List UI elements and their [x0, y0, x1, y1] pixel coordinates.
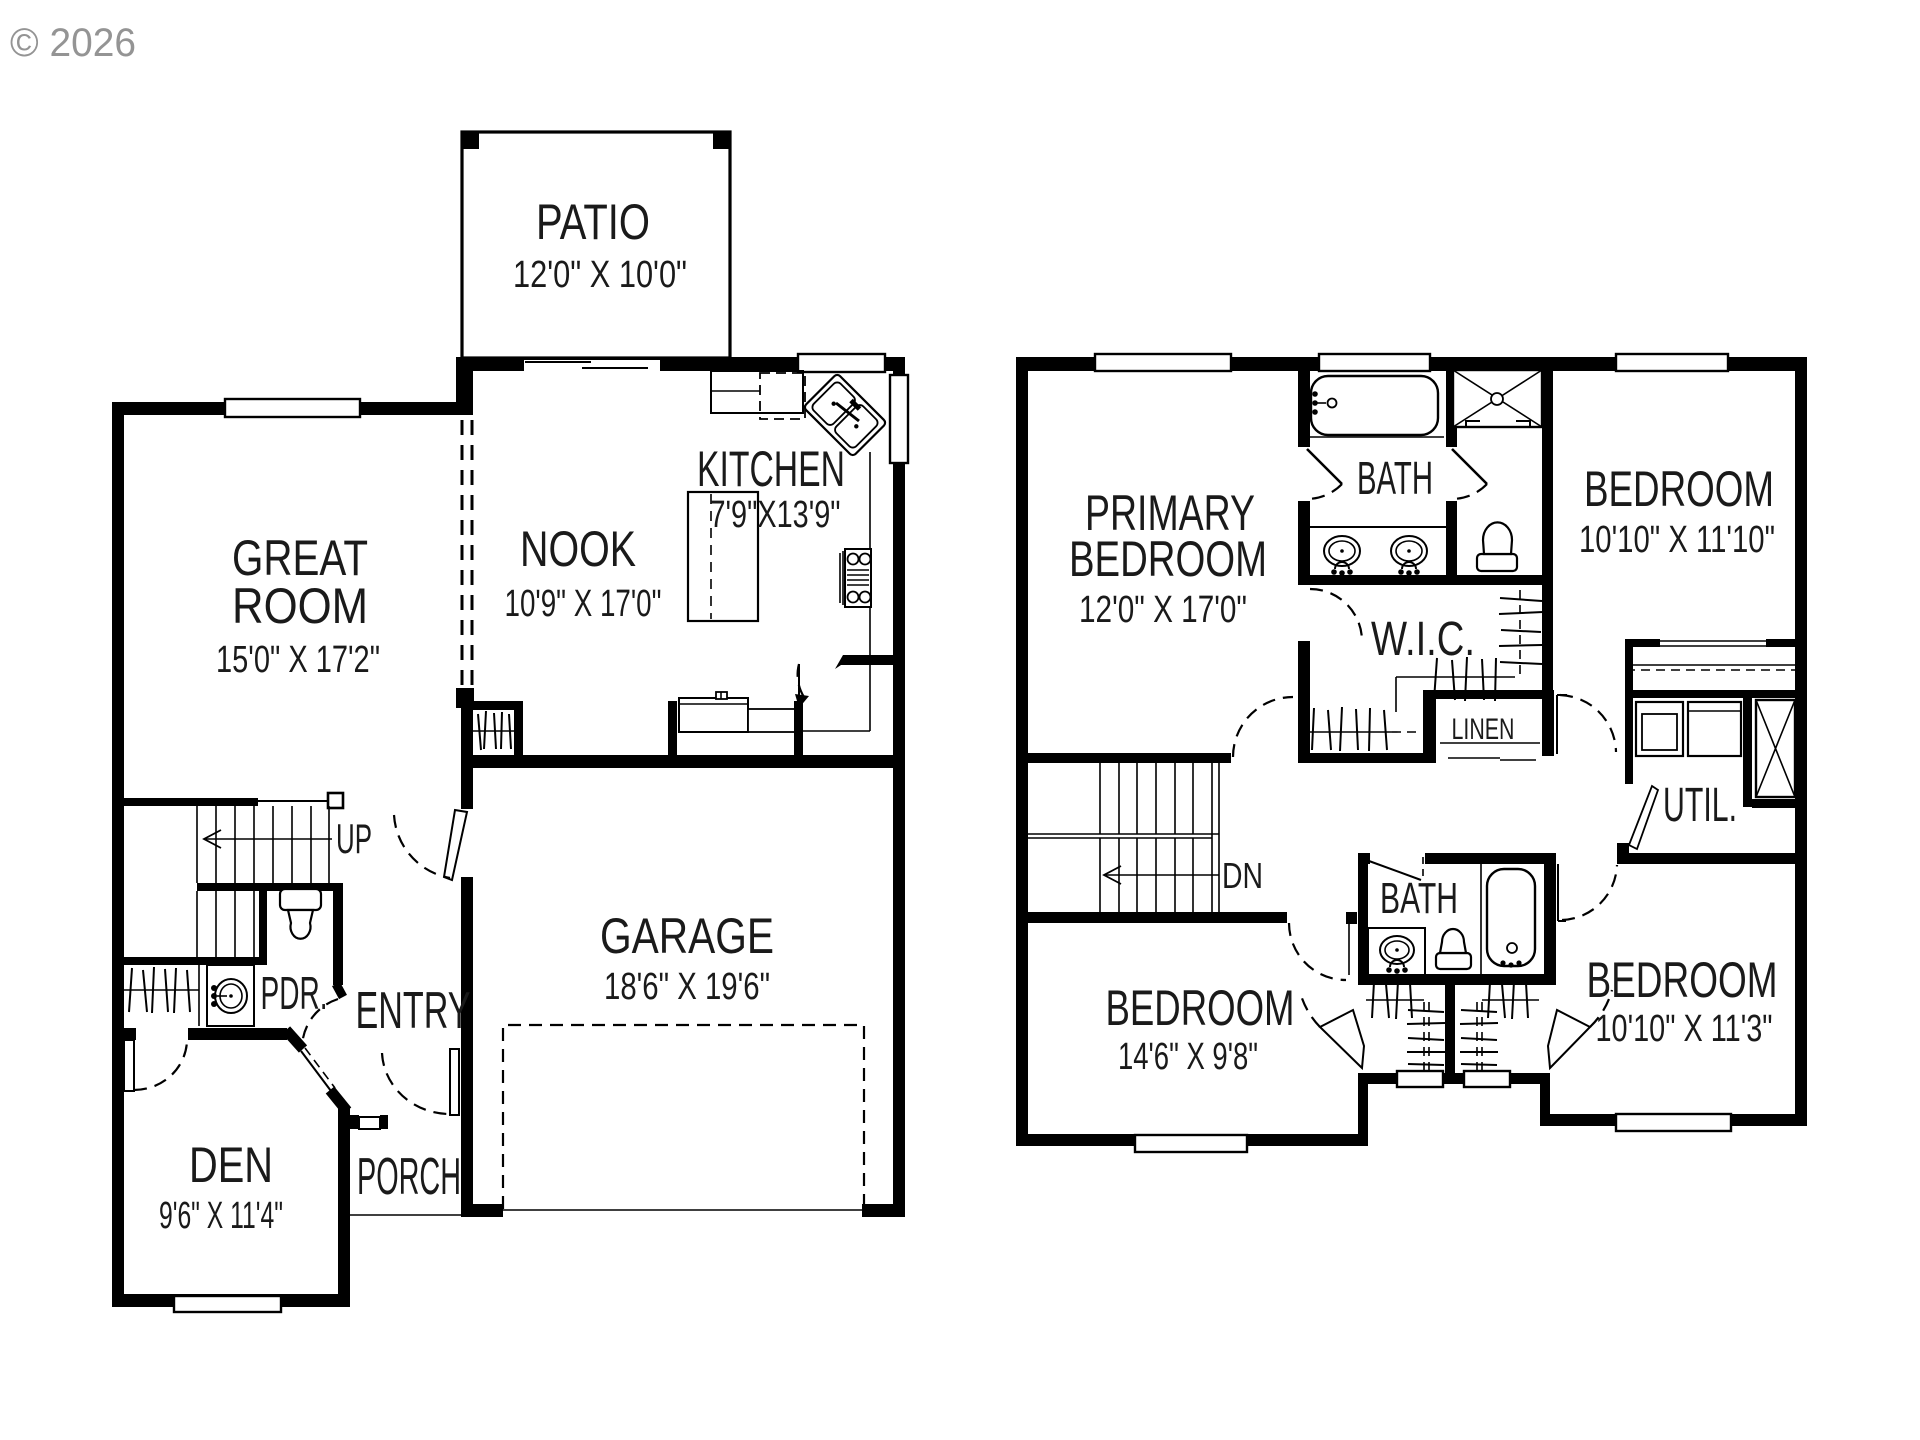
- svg-text:BEDROOM: BEDROOM: [1584, 461, 1774, 517]
- svg-text:ENTRY: ENTRY: [356, 982, 471, 1040]
- svg-text:DEN: DEN: [189, 1137, 273, 1193]
- svg-text:7'9"X13'9": 7'9"X13'9": [710, 494, 841, 536]
- svg-text:UP: UP: [336, 815, 372, 862]
- svg-text:9'6" X 11'4": 9'6" X 11'4": [159, 1195, 283, 1237]
- svg-text:BEDROOM: BEDROOM: [1587, 952, 1778, 1008]
- svg-text:BEDROOM: BEDROOM: [1069, 531, 1267, 587]
- svg-text:© 2026: © 2026: [10, 21, 136, 65]
- svg-text:18'6" X 19'6": 18'6" X 19'6": [604, 966, 770, 1008]
- svg-text:10'10" X 11'10": 10'10" X 11'10": [1579, 519, 1775, 561]
- svg-text:BATH: BATH: [1357, 452, 1433, 504]
- svg-text:NOOK: NOOK: [520, 521, 636, 577]
- svg-text:PATIO: PATIO: [536, 194, 650, 250]
- svg-text:12'0" X 10'0": 12'0" X 10'0": [513, 254, 687, 296]
- svg-text:BEDROOM: BEDROOM: [1106, 980, 1295, 1036]
- svg-text:10'9" X 17'0": 10'9" X 17'0": [505, 583, 662, 625]
- svg-text:12'0" X 17'0": 12'0" X 17'0": [1079, 589, 1247, 631]
- svg-text:KITCHEN: KITCHEN: [697, 441, 845, 497]
- svg-text:GARAGE: GARAGE: [600, 908, 774, 964]
- svg-text:W.I.C.: W.I.C.: [1371, 613, 1475, 666]
- svg-text:PORCH: PORCH: [357, 1148, 461, 1206]
- svg-text:UTIL.: UTIL.: [1663, 779, 1737, 832]
- svg-text:14'6" X 9'8": 14'6" X 9'8": [1118, 1036, 1258, 1078]
- svg-text:DN: DN: [1222, 855, 1263, 896]
- svg-text:15'0" X 17'2": 15'0" X 17'2": [216, 639, 380, 681]
- svg-text:ROOM: ROOM: [232, 578, 368, 634]
- svg-text:10'10" X 11'3": 10'10" X 11'3": [1596, 1008, 1773, 1050]
- svg-text:BATH: BATH: [1380, 874, 1458, 923]
- svg-text:PDR.: PDR.: [261, 967, 328, 1019]
- svg-text:LINEN: LINEN: [1452, 713, 1515, 746]
